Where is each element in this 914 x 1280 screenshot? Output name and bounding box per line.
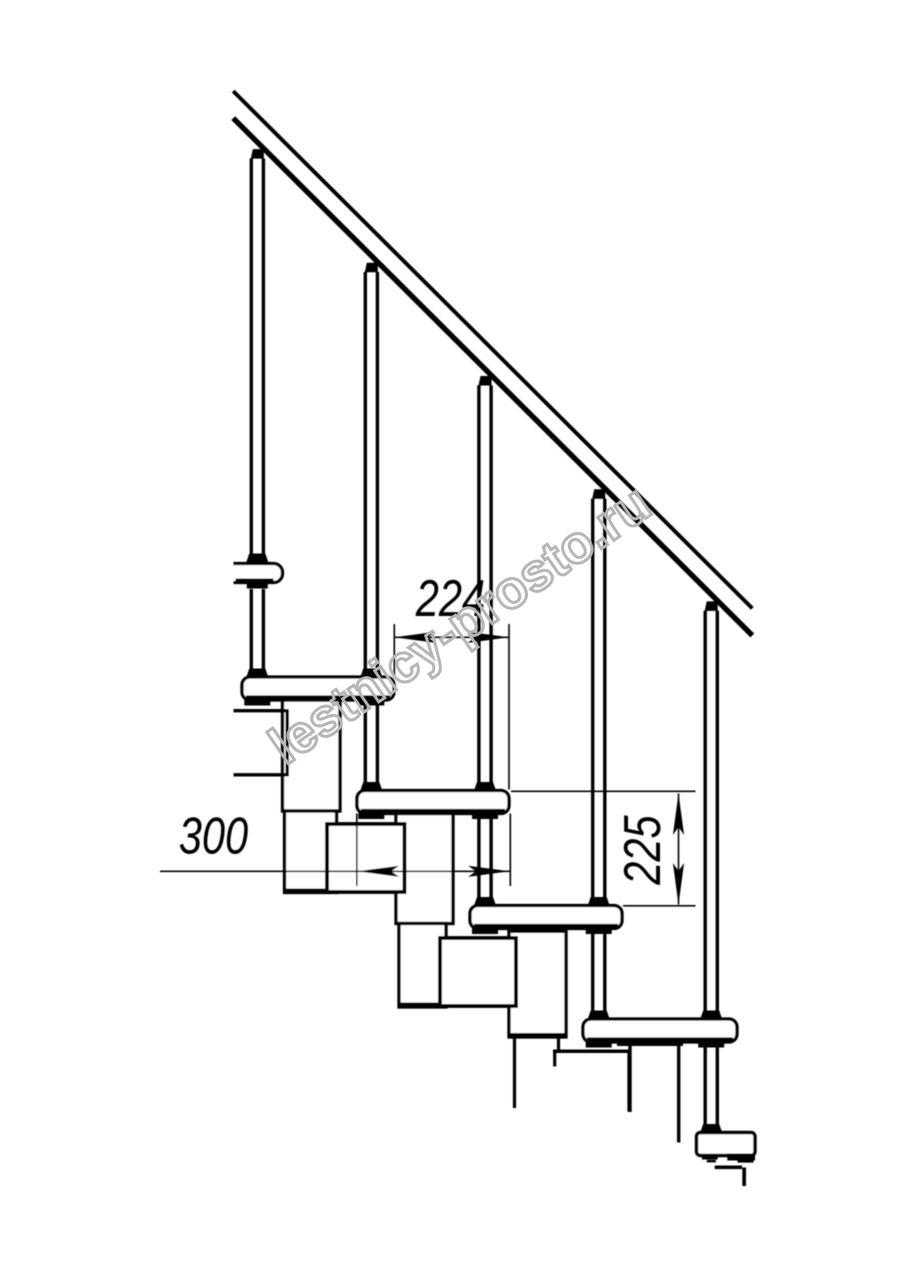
- svg-text:225: 225: [613, 815, 672, 886]
- svg-text:300: 300: [179, 806, 248, 865]
